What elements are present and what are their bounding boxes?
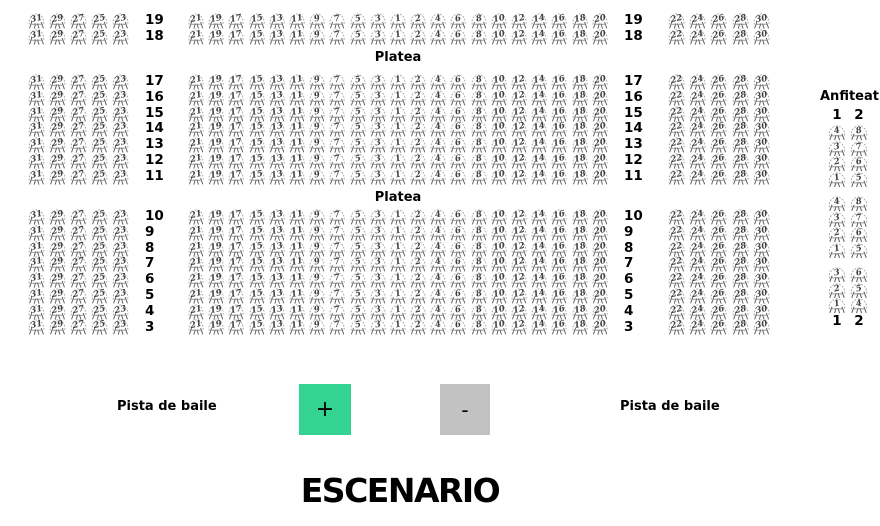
seat-14[interactable]: 14 (529, 90, 549, 106)
seat-14[interactable]: 14 (529, 74, 549, 90)
seat-31[interactable]: 31 (26, 169, 47, 185)
seat-31[interactable]: 31 (26, 13, 47, 29)
seat-12[interactable]: 12 (509, 241, 529, 257)
seat-3[interactable]: 3 (368, 256, 388, 272)
seat-7[interactable]: 7 (327, 272, 347, 288)
seat-12[interactable]: 12 (509, 153, 529, 169)
seat-5[interactable]: 5 (348, 241, 368, 257)
seat-18[interactable]: 18 (570, 90, 590, 106)
seat-16[interactable]: 16 (549, 288, 569, 304)
seat-12[interactable]: 12 (509, 225, 529, 241)
seat-22[interactable]: 22 (666, 304, 687, 320)
seat-20[interactable]: 20 (590, 256, 610, 272)
seat-5[interactable]: 5 (348, 225, 368, 241)
zoom-in-button[interactable]: + (299, 384, 351, 435)
seat-13[interactable]: 13 (267, 29, 287, 45)
seat-1[interactable]: 1 (388, 106, 408, 122)
seat-12[interactable]: 12 (509, 106, 529, 122)
seat-23[interactable]: 23 (110, 106, 131, 122)
seat-5[interactable]: 5 (348, 13, 368, 29)
seat-22[interactable]: 22 (666, 13, 687, 29)
seat-9[interactable]: 9 (307, 29, 327, 45)
seat-6[interactable]: 6 (448, 209, 468, 225)
seat-29[interactable]: 29 (47, 288, 68, 304)
seat-9[interactable]: 9 (307, 256, 327, 272)
seat-2[interactable]: 2 (408, 169, 428, 185)
seat-13[interactable]: 13 (267, 319, 287, 335)
seat-12[interactable]: 12 (509, 137, 529, 153)
seat-8[interactable]: 8 (469, 153, 489, 169)
seat-25[interactable]: 25 (89, 74, 110, 90)
seat-13[interactable]: 13 (267, 256, 287, 272)
seat-17[interactable]: 17 (226, 272, 246, 288)
seat-20[interactable]: 20 (590, 288, 610, 304)
seat-23[interactable]: 23 (110, 90, 131, 106)
seat-28[interactable]: 28 (730, 106, 751, 122)
seat-5[interactable]: 5 (848, 283, 870, 299)
seat-22[interactable]: 22 (666, 137, 687, 153)
seat-27[interactable]: 27 (68, 288, 89, 304)
seat-5[interactable]: 5 (348, 169, 368, 185)
seat-30[interactable]: 30 (751, 137, 772, 153)
seat-10[interactable]: 10 (489, 304, 509, 320)
seat-22[interactable]: 22 (666, 288, 687, 304)
seat-4[interactable]: 4 (428, 121, 448, 137)
seat-5[interactable]: 5 (348, 153, 368, 169)
seat-23[interactable]: 23 (110, 304, 131, 320)
seat-17[interactable]: 17 (226, 90, 246, 106)
seat-23[interactable]: 23 (110, 209, 131, 225)
seat-19[interactable]: 19 (206, 256, 226, 272)
seat-15[interactable]: 15 (247, 225, 267, 241)
seat-27[interactable]: 27 (68, 29, 89, 45)
seat-17[interactable]: 17 (226, 106, 246, 122)
seat-20[interactable]: 20 (590, 121, 610, 137)
seat-15[interactable]: 15 (247, 106, 267, 122)
seat-7[interactable]: 7 (327, 106, 347, 122)
seat-9[interactable]: 9 (307, 106, 327, 122)
seat-8[interactable]: 8 (469, 169, 489, 185)
seat-1[interactable]: 1 (388, 169, 408, 185)
seat-29[interactable]: 29 (47, 319, 68, 335)
seat-5[interactable]: 5 (848, 243, 870, 259)
seat-9[interactable]: 9 (307, 137, 327, 153)
seat-12[interactable]: 12 (509, 90, 529, 106)
seat-11[interactable]: 11 (287, 304, 307, 320)
seat-31[interactable]: 31 (26, 256, 47, 272)
seat-1[interactable]: 1 (388, 272, 408, 288)
seat-1[interactable]: 1 (388, 90, 408, 106)
seat-19[interactable]: 19 (206, 272, 226, 288)
seat-19[interactable]: 19 (206, 153, 226, 169)
seat-29[interactable]: 29 (47, 241, 68, 257)
seat-9[interactable]: 9 (307, 288, 327, 304)
seat-2[interactable]: 2 (408, 256, 428, 272)
seat-17[interactable]: 17 (226, 225, 246, 241)
seat-1[interactable]: 1 (826, 298, 848, 314)
seat-7[interactable]: 7 (327, 90, 347, 106)
seat-30[interactable]: 30 (751, 13, 772, 29)
seat-23[interactable]: 23 (110, 153, 131, 169)
seat-13[interactable]: 13 (267, 209, 287, 225)
seat-30[interactable]: 30 (751, 90, 772, 106)
seat-29[interactable]: 29 (47, 272, 68, 288)
seat-25[interactable]: 25 (89, 169, 110, 185)
seat-6[interactable]: 6 (448, 13, 468, 29)
seat-3[interactable]: 3 (368, 169, 388, 185)
seat-8[interactable]: 8 (469, 74, 489, 90)
seat-12[interactable]: 12 (509, 304, 529, 320)
seat-13[interactable]: 13 (267, 74, 287, 90)
seat-28[interactable]: 28 (730, 153, 751, 169)
seat-21[interactable]: 21 (186, 256, 206, 272)
seat-26[interactable]: 26 (708, 272, 729, 288)
seat-11[interactable]: 11 (287, 209, 307, 225)
seat-29[interactable]: 29 (47, 153, 68, 169)
seat-24[interactable]: 24 (687, 272, 708, 288)
seat-18[interactable]: 18 (570, 225, 590, 241)
seat-27[interactable]: 27 (68, 304, 89, 320)
seat-7[interactable]: 7 (327, 169, 347, 185)
seat-20[interactable]: 20 (590, 304, 610, 320)
seat-4[interactable]: 4 (428, 74, 448, 90)
seat-21[interactable]: 21 (186, 74, 206, 90)
seat-21[interactable]: 21 (186, 90, 206, 106)
seat-5[interactable]: 5 (348, 209, 368, 225)
seat-4[interactable]: 4 (428, 304, 448, 320)
seat-31[interactable]: 31 (26, 272, 47, 288)
seat-10[interactable]: 10 (489, 74, 509, 90)
seat-27[interactable]: 27 (68, 106, 89, 122)
seat-19[interactable]: 19 (206, 74, 226, 90)
seat-12[interactable]: 12 (509, 74, 529, 90)
seat-14[interactable]: 14 (529, 272, 549, 288)
seat-18[interactable]: 18 (570, 106, 590, 122)
seat-11[interactable]: 11 (287, 74, 307, 90)
seat-6[interactable]: 6 (848, 227, 870, 243)
seat-18[interactable]: 18 (570, 153, 590, 169)
seat-2[interactable]: 2 (408, 241, 428, 257)
seat-5[interactable]: 5 (348, 137, 368, 153)
seat-7[interactable]: 7 (327, 121, 347, 137)
seat-27[interactable]: 27 (68, 209, 89, 225)
seat-26[interactable]: 26 (708, 241, 729, 257)
seat-3[interactable]: 3 (368, 74, 388, 90)
seat-14[interactable]: 14 (529, 153, 549, 169)
seat-24[interactable]: 24 (687, 106, 708, 122)
seat-3[interactable]: 3 (368, 106, 388, 122)
seat-28[interactable]: 28 (730, 169, 751, 185)
seat-29[interactable]: 29 (47, 29, 68, 45)
seat-7[interactable]: 7 (327, 13, 347, 29)
seat-28[interactable]: 28 (730, 241, 751, 257)
seat-8[interactable]: 8 (469, 304, 489, 320)
seat-25[interactable]: 25 (89, 106, 110, 122)
seat-26[interactable]: 26 (708, 153, 729, 169)
seat-6[interactable]: 6 (448, 319, 468, 335)
seat-2[interactable]: 2 (408, 106, 428, 122)
seat-22[interactable]: 22 (666, 121, 687, 137)
seat-26[interactable]: 26 (708, 169, 729, 185)
seat-30[interactable]: 30 (751, 153, 772, 169)
seat-23[interactable]: 23 (110, 319, 131, 335)
seat-27[interactable]: 27 (68, 74, 89, 90)
seat-25[interactable]: 25 (89, 304, 110, 320)
seat-16[interactable]: 16 (549, 272, 569, 288)
seat-30[interactable]: 30 (751, 272, 772, 288)
seat-9[interactable]: 9 (307, 74, 327, 90)
seat-2[interactable]: 2 (826, 283, 848, 299)
seat-21[interactable]: 21 (186, 169, 206, 185)
seat-23[interactable]: 23 (110, 272, 131, 288)
seat-11[interactable]: 11 (287, 288, 307, 304)
seat-5[interactable]: 5 (348, 29, 368, 45)
seat-3[interactable]: 3 (368, 272, 388, 288)
seat-18[interactable]: 18 (570, 288, 590, 304)
seat-24[interactable]: 24 (687, 225, 708, 241)
seat-29[interactable]: 29 (47, 13, 68, 29)
seat-12[interactable]: 12 (509, 319, 529, 335)
seat-3[interactable]: 3 (368, 29, 388, 45)
seat-16[interactable]: 16 (549, 209, 569, 225)
seat-26[interactable]: 26 (708, 209, 729, 225)
seat-31[interactable]: 31 (26, 121, 47, 137)
seat-20[interactable]: 20 (590, 241, 610, 257)
seat-22[interactable]: 22 (666, 90, 687, 106)
seat-6[interactable]: 6 (848, 156, 870, 172)
seat-9[interactable]: 9 (307, 209, 327, 225)
seat-2[interactable]: 2 (826, 156, 848, 172)
seat-15[interactable]: 15 (247, 169, 267, 185)
seat-7[interactable]: 7 (848, 212, 870, 228)
seat-18[interactable]: 18 (570, 74, 590, 90)
seat-4[interactable]: 4 (428, 272, 448, 288)
seat-18[interactable]: 18 (570, 241, 590, 257)
seat-1[interactable]: 1 (388, 137, 408, 153)
seat-12[interactable]: 12 (509, 13, 529, 29)
seat-14[interactable]: 14 (529, 319, 549, 335)
seat-31[interactable]: 31 (26, 137, 47, 153)
seat-19[interactable]: 19 (206, 29, 226, 45)
seat-28[interactable]: 28 (730, 319, 751, 335)
seat-24[interactable]: 24 (687, 241, 708, 257)
seat-28[interactable]: 28 (730, 121, 751, 137)
seat-7[interactable]: 7 (327, 319, 347, 335)
seat-23[interactable]: 23 (110, 169, 131, 185)
seat-24[interactable]: 24 (687, 169, 708, 185)
seat-5[interactable]: 5 (848, 172, 870, 188)
seat-1[interactable]: 1 (388, 319, 408, 335)
seat-30[interactable]: 30 (751, 256, 772, 272)
seat-7[interactable]: 7 (327, 288, 347, 304)
seat-14[interactable]: 14 (529, 225, 549, 241)
seat-19[interactable]: 19 (206, 169, 226, 185)
seat-24[interactable]: 24 (687, 74, 708, 90)
seat-21[interactable]: 21 (186, 272, 206, 288)
seat-15[interactable]: 15 (247, 121, 267, 137)
seat-4[interactable]: 4 (428, 13, 448, 29)
seat-18[interactable]: 18 (570, 169, 590, 185)
seat-18[interactable]: 18 (570, 319, 590, 335)
seat-26[interactable]: 26 (708, 13, 729, 29)
seat-10[interactable]: 10 (489, 29, 509, 45)
seat-4[interactable]: 4 (428, 241, 448, 257)
seat-21[interactable]: 21 (186, 137, 206, 153)
seat-2[interactable]: 2 (408, 121, 428, 137)
seat-13[interactable]: 13 (267, 225, 287, 241)
seat-15[interactable]: 15 (247, 319, 267, 335)
seat-31[interactable]: 31 (26, 90, 47, 106)
seat-14[interactable]: 14 (529, 137, 549, 153)
seat-11[interactable]: 11 (287, 153, 307, 169)
seat-16[interactable]: 16 (549, 90, 569, 106)
seat-15[interactable]: 15 (247, 137, 267, 153)
seat-6[interactable]: 6 (448, 304, 468, 320)
seat-27[interactable]: 27 (68, 225, 89, 241)
seat-31[interactable]: 31 (26, 241, 47, 257)
seat-2[interactable]: 2 (826, 227, 848, 243)
seat-24[interactable]: 24 (687, 121, 708, 137)
seat-1[interactable]: 1 (826, 243, 848, 259)
seat-16[interactable]: 16 (549, 74, 569, 90)
seat-30[interactable]: 30 (751, 106, 772, 122)
seat-14[interactable]: 14 (529, 288, 549, 304)
seat-27[interactable]: 27 (68, 153, 89, 169)
seat-28[interactable]: 28 (730, 209, 751, 225)
seat-17[interactable]: 17 (226, 153, 246, 169)
seat-26[interactable]: 26 (708, 121, 729, 137)
seat-24[interactable]: 24 (687, 137, 708, 153)
seat-7[interactable]: 7 (327, 209, 347, 225)
seat-29[interactable]: 29 (47, 169, 68, 185)
seat-15[interactable]: 15 (247, 272, 267, 288)
seat-24[interactable]: 24 (687, 90, 708, 106)
seat-21[interactable]: 21 (186, 288, 206, 304)
seat-16[interactable]: 16 (549, 29, 569, 45)
seat-25[interactable]: 25 (89, 256, 110, 272)
seat-11[interactable]: 11 (287, 121, 307, 137)
seat-2[interactable]: 2 (408, 272, 428, 288)
seat-20[interactable]: 20 (590, 90, 610, 106)
seat-27[interactable]: 27 (68, 169, 89, 185)
seat-11[interactable]: 11 (287, 137, 307, 153)
seat-30[interactable]: 30 (751, 169, 772, 185)
seat-25[interactable]: 25 (89, 153, 110, 169)
seat-8[interactable]: 8 (469, 288, 489, 304)
seat-10[interactable]: 10 (489, 288, 509, 304)
seat-16[interactable]: 16 (549, 225, 569, 241)
seat-2[interactable]: 2 (408, 137, 428, 153)
seat-13[interactable]: 13 (267, 169, 287, 185)
seat-19[interactable]: 19 (206, 90, 226, 106)
seat-30[interactable]: 30 (751, 209, 772, 225)
seat-5[interactable]: 5 (348, 74, 368, 90)
seat-10[interactable]: 10 (489, 241, 509, 257)
seat-27[interactable]: 27 (68, 319, 89, 335)
seat-13[interactable]: 13 (267, 90, 287, 106)
seat-10[interactable]: 10 (489, 13, 509, 29)
seat-20[interactable]: 20 (590, 209, 610, 225)
seat-6[interactable]: 6 (448, 256, 468, 272)
seat-9[interactable]: 9 (307, 225, 327, 241)
seat-14[interactable]: 14 (529, 256, 549, 272)
seat-4[interactable]: 4 (428, 319, 448, 335)
seat-27[interactable]: 27 (68, 272, 89, 288)
seat-4[interactable]: 4 (826, 125, 848, 141)
seat-16[interactable]: 16 (549, 153, 569, 169)
seat-8[interactable]: 8 (469, 29, 489, 45)
seat-8[interactable]: 8 (469, 256, 489, 272)
seat-26[interactable]: 26 (708, 225, 729, 241)
seat-18[interactable]: 18 (570, 29, 590, 45)
seat-2[interactable]: 2 (408, 288, 428, 304)
seat-1[interactable]: 1 (388, 304, 408, 320)
seat-20[interactable]: 20 (590, 169, 610, 185)
seat-30[interactable]: 30 (751, 288, 772, 304)
seat-12[interactable]: 12 (509, 121, 529, 137)
seat-21[interactable]: 21 (186, 241, 206, 257)
seat-7[interactable]: 7 (327, 29, 347, 45)
seat-9[interactable]: 9 (307, 272, 327, 288)
seat-22[interactable]: 22 (666, 74, 687, 90)
seat-17[interactable]: 17 (226, 241, 246, 257)
seat-28[interactable]: 28 (730, 225, 751, 241)
seat-4[interactable]: 4 (428, 169, 448, 185)
seat-22[interactable]: 22 (666, 209, 687, 225)
seat-18[interactable]: 18 (570, 256, 590, 272)
seat-29[interactable]: 29 (47, 106, 68, 122)
seat-20[interactable]: 20 (590, 272, 610, 288)
seat-30[interactable]: 30 (751, 29, 772, 45)
seat-30[interactable]: 30 (751, 121, 772, 137)
seat-1[interactable]: 1 (826, 172, 848, 188)
seat-28[interactable]: 28 (730, 29, 751, 45)
seat-7[interactable]: 7 (327, 153, 347, 169)
seat-4[interactable]: 4 (428, 225, 448, 241)
seat-7[interactable]: 7 (327, 241, 347, 257)
seat-9[interactable]: 9 (307, 169, 327, 185)
seat-25[interactable]: 25 (89, 121, 110, 137)
seat-3[interactable]: 3 (368, 319, 388, 335)
seat-10[interactable]: 10 (489, 153, 509, 169)
seat-6[interactable]: 6 (448, 106, 468, 122)
seat-31[interactable]: 31 (26, 153, 47, 169)
seat-10[interactable]: 10 (489, 169, 509, 185)
seat-15[interactable]: 15 (247, 29, 267, 45)
seat-14[interactable]: 14 (529, 304, 549, 320)
seat-3[interactable]: 3 (368, 225, 388, 241)
seat-25[interactable]: 25 (89, 137, 110, 153)
seat-8[interactable]: 8 (469, 272, 489, 288)
seat-6[interactable]: 6 (448, 288, 468, 304)
seat-13[interactable]: 13 (267, 288, 287, 304)
seat-22[interactable]: 22 (666, 272, 687, 288)
seat-24[interactable]: 24 (687, 209, 708, 225)
seat-3[interactable]: 3 (368, 137, 388, 153)
seat-5[interactable]: 5 (348, 288, 368, 304)
seat-4[interactable]: 4 (428, 29, 448, 45)
seat-14[interactable]: 14 (529, 241, 549, 257)
seat-11[interactable]: 11 (287, 225, 307, 241)
seat-22[interactable]: 22 (666, 241, 687, 257)
seat-2[interactable]: 2 (408, 90, 428, 106)
seat-1[interactable]: 1 (388, 121, 408, 137)
seat-19[interactable]: 19 (206, 137, 226, 153)
seat-9[interactable]: 9 (307, 13, 327, 29)
seat-6[interactable]: 6 (848, 267, 870, 283)
seat-5[interactable]: 5 (348, 272, 368, 288)
seat-12[interactable]: 12 (509, 209, 529, 225)
